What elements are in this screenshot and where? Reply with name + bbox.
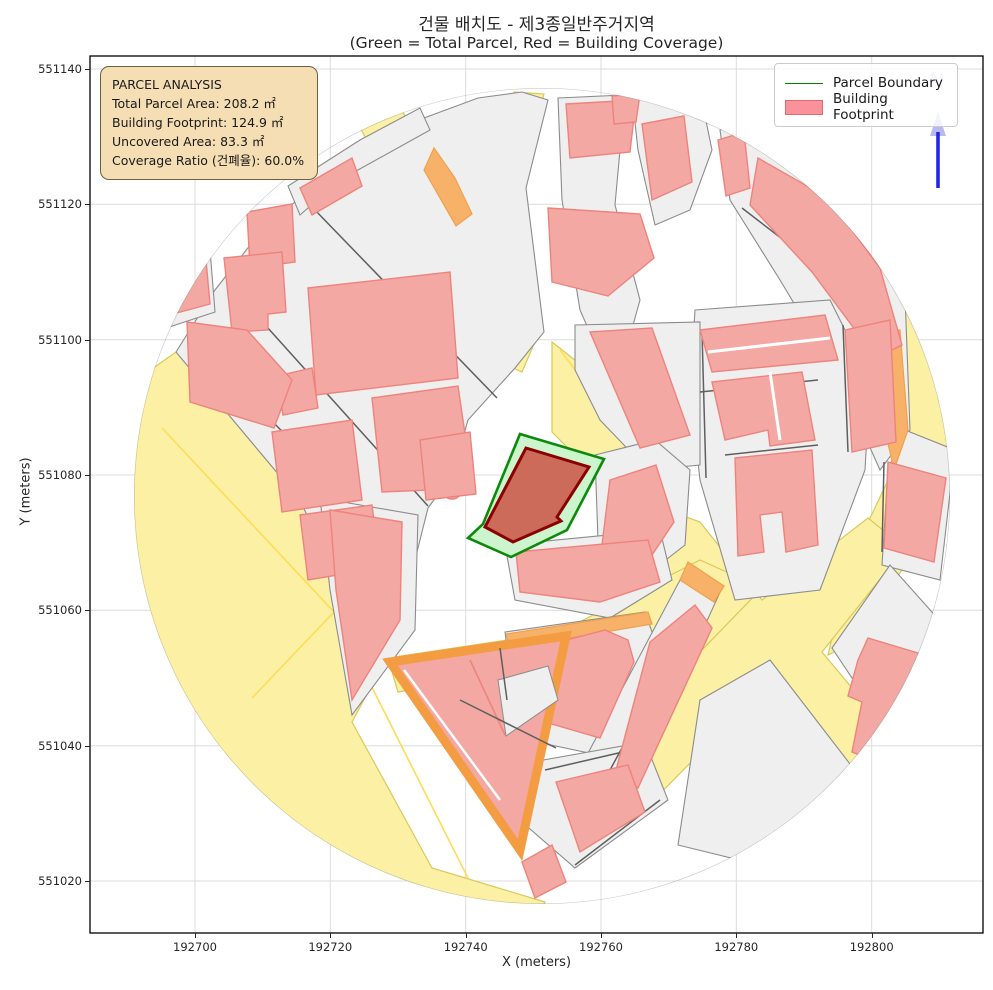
info-line-uncovered: Uncovered Area: 83.3 ㎡: [112, 132, 306, 151]
x-tick-label: 192800: [850, 940, 894, 954]
legend-item-building-footprint: Building Footprint: [785, 95, 947, 119]
x-tick-mark: [330, 933, 331, 938]
x-tick-label: 192700: [173, 940, 217, 954]
info-line-total-area: Total Parcel Area: 208.2 ㎡: [112, 94, 306, 113]
y-tick-label: 551120: [30, 197, 82, 211]
map-area: [80, 88, 975, 960]
x-tick-label: 192720: [308, 940, 352, 954]
y-tick-mark: [85, 610, 90, 611]
figure: N 건물 배치도 - 제3종일반주거지역 (Green = Total Parc…: [0, 0, 993, 990]
x-tick-label: 192780: [714, 940, 758, 954]
x-tick-mark: [195, 933, 196, 938]
y-tick-label: 551100: [30, 333, 82, 347]
y-tick-mark: [85, 204, 90, 205]
y-tick-mark: [85, 69, 90, 70]
info-line-coverage: Coverage Ratio (건폐율): 60.0%: [112, 151, 306, 170]
legend-label: Building Footprint: [833, 91, 947, 123]
y-tick-label: 551040: [30, 739, 82, 753]
legend-line-sample-icon: [785, 83, 823, 84]
y-tick-mark: [85, 340, 90, 341]
x-tick-mark: [872, 933, 873, 938]
x-tick-mark: [601, 933, 602, 938]
parcel-analysis-box: PARCEL ANALYSIS Total Parcel Area: 208.2…: [100, 66, 318, 180]
x-tick-label: 192740: [444, 940, 488, 954]
chart-subtitle: (Green = Total Parcel, Red = Building Co…: [90, 34, 983, 52]
y-tick-mark: [85, 881, 90, 882]
x-tick-mark: [736, 933, 737, 938]
x-axis-label: X (meters): [90, 955, 983, 970]
info-line-footprint: Building Footprint: 124.9 ㎡: [112, 113, 306, 132]
y-tick-label: 551060: [30, 603, 82, 617]
info-box-heading: PARCEL ANALYSIS: [112, 75, 306, 94]
y-tick-label: 551140: [30, 62, 82, 76]
y-tick-mark: [85, 475, 90, 476]
chart-title: 건물 배치도 - 제3종일반주거지역: [90, 10, 983, 35]
legend-label: Parcel Boundary: [833, 75, 943, 91]
y-tick-mark: [85, 746, 90, 747]
x-tick-label: 192760: [579, 940, 623, 954]
y-axis-label: Y (meters): [19, 432, 34, 552]
legend-patch-sample-icon: [785, 100, 823, 115]
y-tick-label: 551080: [30, 468, 82, 482]
legend: Parcel Boundary Building Footprint: [774, 63, 958, 127]
x-tick-mark: [466, 933, 467, 938]
y-tick-label: 551020: [30, 874, 82, 888]
